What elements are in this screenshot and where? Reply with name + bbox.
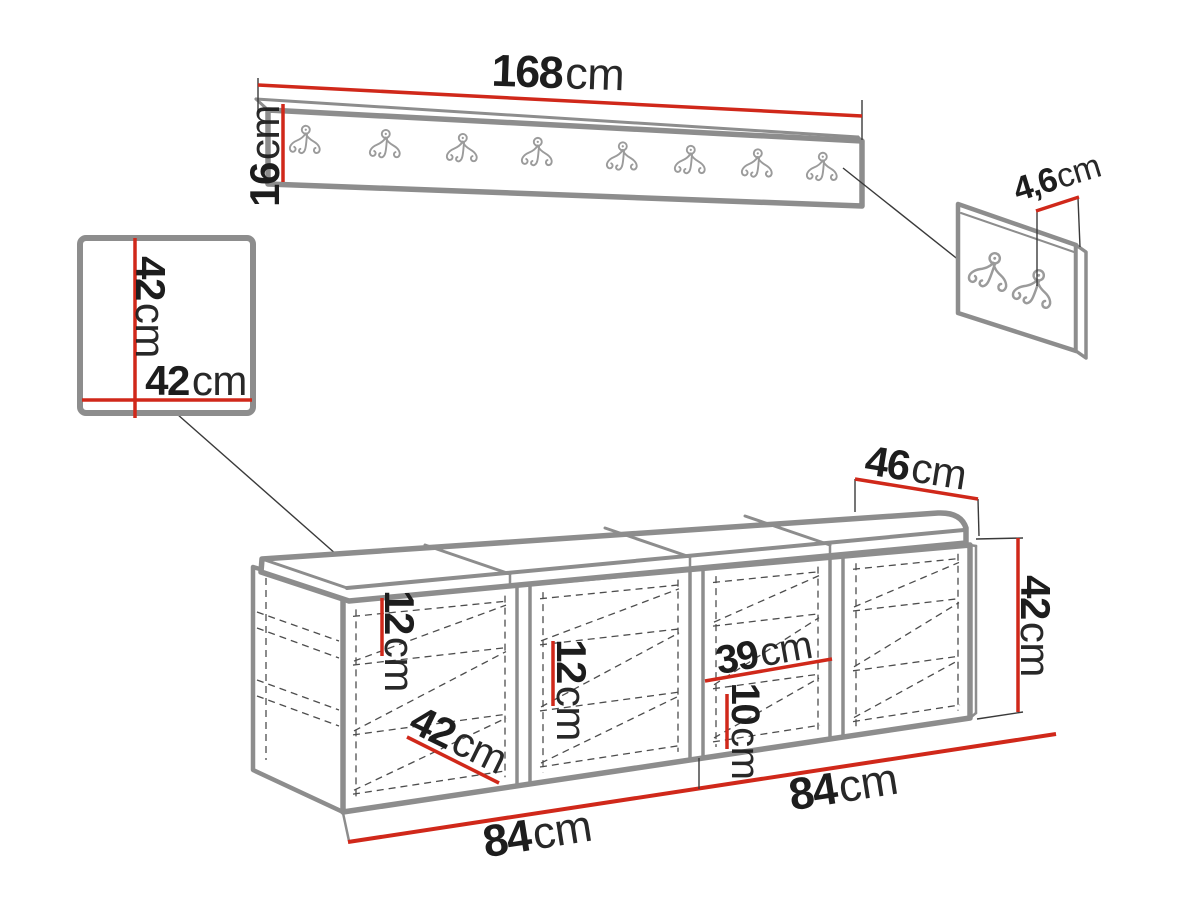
height-extension-line-top [976, 538, 1023, 539]
wall-coat-rack: 168cm 16cm [241, 44, 863, 207]
shelf-gap-middle-label: 12cm [549, 639, 596, 741]
square-width-label: 42cm [145, 357, 247, 404]
rack-front-panel [268, 110, 862, 206]
panel-depth-label: 4,6cm [1009, 147, 1105, 209]
bench-depth-label: 46cm [862, 436, 970, 498]
bench-half-right-label: 84cm [785, 752, 901, 819]
bench-height-label: 42cm [1013, 575, 1060, 677]
square-height-label: 42cm [128, 256, 175, 358]
rack-height-label: 16cm [241, 105, 288, 207]
shelf-gap-top-label: 12cm [377, 590, 424, 692]
bench-half-left-label: 84cm [479, 799, 595, 866]
shelf-gap-bottom-label: 10cm [723, 683, 767, 780]
leader-panel-to-bench [177, 414, 345, 562]
furniture-diagram: 168cm 16cm 4,6cm 42cm 42cm [0, 0, 1200, 900]
bench-plinth-corner [343, 813, 349, 841]
square-wall-panel: 42cm 42cm [80, 238, 253, 418]
rack-width-label: 168cm [491, 44, 625, 100]
wall-hook-panel: 4,6cm [958, 147, 1105, 358]
storage-bench: 46cm 42cm 12cm 12cm 39cm 10cm 42cm 84cm … [253, 436, 1060, 867]
bench-top-right-edge [970, 545, 976, 546]
hook-panel-side-face [1076, 245, 1086, 358]
panel-depth-extension-line-right [1078, 198, 1080, 247]
dimension-drawing-canvas: 168cm 16cm 4,6cm 42cm 42cm [0, 0, 1200, 900]
height-extension-line-bottom [977, 712, 1023, 719]
depth-extension-line-right [978, 499, 979, 536]
leader-rack-to-hook-panel [843, 168, 960, 261]
